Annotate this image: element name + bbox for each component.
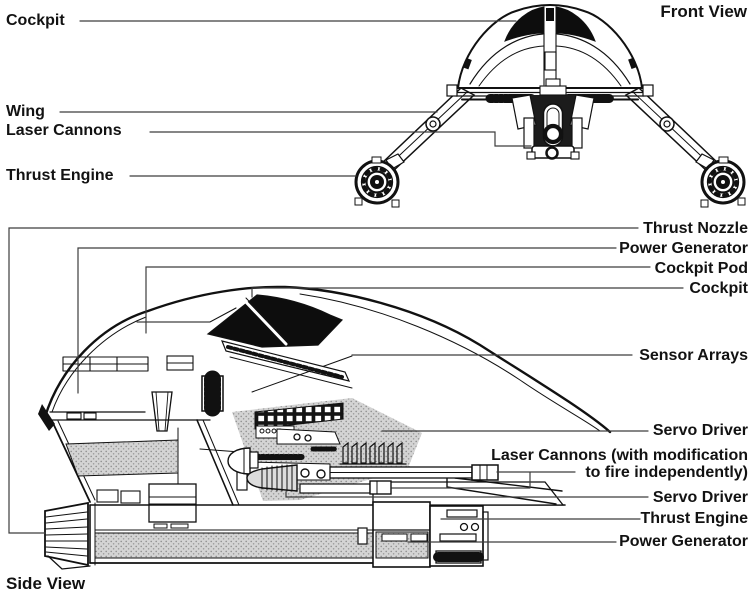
side-bulkhead-dome-fitting xyxy=(228,448,250,474)
label-laser-cannons-side-line2: to fire independently) xyxy=(491,464,748,481)
front-view-drawing xyxy=(60,5,745,207)
label-thrust-engine-side: Thrust Engine xyxy=(640,510,748,527)
spacecraft-diagram xyxy=(0,0,752,600)
label-power-generator-bottom: Power Generator xyxy=(619,533,748,550)
label-power-generator-top: Power Generator xyxy=(619,240,748,257)
side-hull-equipment-box xyxy=(149,484,196,522)
label-sensor-arrays: Sensor Arrays xyxy=(639,347,748,364)
label-cockpit-front: Cockpit xyxy=(6,12,65,29)
side-thrust-nozzle xyxy=(45,503,90,569)
front-laser-cannon-cluster xyxy=(512,79,594,159)
front-view-title: Front View xyxy=(660,3,747,21)
label-thrust-engine-front: Thrust Engine xyxy=(6,167,114,184)
label-servo-driver-upper: Servo Driver xyxy=(653,422,748,439)
side-view-title: Side View xyxy=(6,575,85,593)
label-cockpit-side: Cockpit xyxy=(689,280,748,297)
side-view-drawing xyxy=(9,228,683,569)
label-wing: Wing xyxy=(6,103,45,120)
label-laser-cannons-front: Laser Cannons xyxy=(6,122,122,139)
label-thrust-nozzle: Thrust Nozzle xyxy=(643,220,748,237)
side-thrust-engine-pod xyxy=(373,502,488,567)
side-hull-tank xyxy=(66,440,178,476)
label-servo-driver-lower: Servo Driver xyxy=(653,489,748,506)
label-laser-cannons-side: Laser Cannons (with modification to fire… xyxy=(491,447,748,481)
label-laser-cannons-side-line1: Laser Cannons (with modification xyxy=(491,447,748,464)
blueprint-page: Front View Cockpit Wing Laser Cannons Th… xyxy=(0,0,752,600)
label-cockpit-pod: Cockpit Pod xyxy=(655,260,748,277)
